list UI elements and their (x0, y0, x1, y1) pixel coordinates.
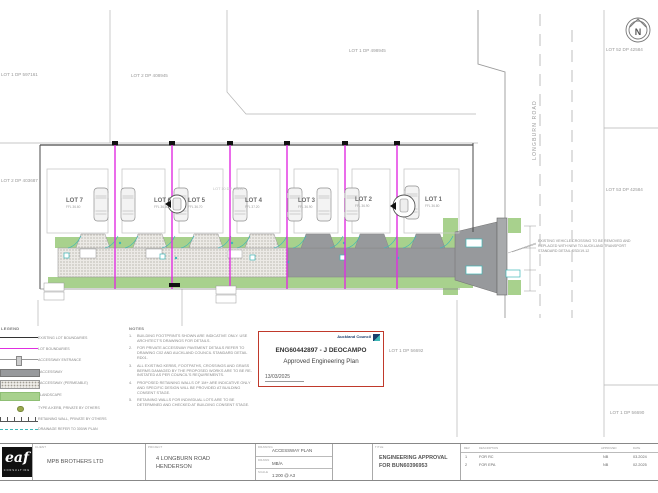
note-item: 3.ALL EXISTING KERBS, FOOTPATHS, CROSSIN… (129, 364, 257, 379)
rev-cell: FOR EPA (479, 463, 495, 467)
bar-dots-icon (0, 380, 40, 389)
project-cell: PROJECT 4 LONGBURN ROAD HENDERSON (145, 444, 256, 480)
lot-name: LOT 3 (298, 198, 316, 204)
stamp-date: 13/03/2025 (265, 374, 304, 382)
lot-ffl: FFL 36.70 (188, 205, 203, 209)
scale-tick-icon (169, 283, 180, 287)
legend-item: TYPE A KERB, PRIVATE BY OTHERS (0, 404, 122, 412)
north-label: N (635, 27, 642, 37)
north-arrow-icon: N (626, 18, 650, 42)
field-scale: SCALE 1:200 @ A3 (256, 468, 333, 481)
council-mark-icon (373, 334, 380, 341)
project-address-line2: HENDERSON (156, 464, 192, 470)
parcel-label: LOT 10 DP 40894 (213, 187, 243, 191)
wall-icon (0, 417, 38, 422)
legend-item: LOT BOUNDARIES (0, 345, 122, 353)
drawing-sheet: N LOT 1 DP 597161 LOT 2 DP 403687 LOT 2 … (0, 0, 658, 493)
svg-text:EXISTING VEHICLE CROSSING TO B: EXISTING VEHICLE CROSSING TO BE REMOVED … (538, 239, 631, 243)
lot-name: LOT 7 (66, 198, 84, 204)
kerb-dot-icon (0, 404, 38, 412)
lot-ffl: FFL 36.60 (66, 205, 81, 209)
line-black-icon (0, 334, 38, 342)
lot-name: LOT 6 (154, 198, 172, 204)
road-name-label: LONGBURN ROAD (532, 100, 538, 160)
rev-cell: FOR RC (479, 455, 494, 459)
legend-item: ACCESSWAY ENTRANCE (0, 356, 122, 365)
bar-gray-icon (0, 369, 40, 377)
lot-name: LOT 4 (245, 198, 263, 204)
lot-ffl: FFL 36.80 (425, 204, 440, 208)
parcel-label: LOT 2 DP 403687 (1, 178, 38, 183)
legend-title: LEGEND (1, 326, 122, 331)
client-name: MPB BROTHERS LTD (47, 459, 103, 465)
parcel-label: LOT 1 DP 498945 (349, 48, 386, 53)
parcel-label: LOT 1 DP 597161 (1, 72, 38, 77)
field-drawing: DRAWING ACCESSWAY PLAN (256, 444, 333, 456)
vehicle-crossing (455, 218, 536, 295)
lot-name: LOT 2 (355, 197, 373, 203)
note-item: 4.PROPOSED RETAINING WALLS OF 1M+ ARE IN… (129, 381, 257, 396)
lot-ffl: FFL 37.20 (245, 205, 260, 209)
svg-text:STANDARD DETAIL SSD/19-12: STANDARD DETAIL SSD/19-12 (538, 249, 589, 253)
sheet-title-line2: FOR BUN60396953 (379, 463, 428, 469)
legend-item: EXISTING LOT BOUNDARIES (0, 334, 122, 342)
line-magenta-icon (0, 345, 38, 353)
approval-stamp: Auckland Council ENG60442897 - J DEOCAMP… (258, 331, 384, 387)
spare-cell (332, 444, 373, 480)
client-cell: CLIENT MPB BROTHERS LTD (32, 444, 146, 480)
rev-cell: 02.2025 (633, 463, 647, 467)
legend: LEGEND EXISTING LOT BOUNDARIES LOT BOUND… (0, 326, 122, 437)
note-item: 1.BUILDING FOOTPRINTS SHOWN ARE INDICATI… (129, 334, 257, 344)
project-address-line1: 4 LONGBURN ROAD (156, 456, 210, 462)
lot-ffl: FFL 36.60 (154, 205, 169, 209)
sheet-title-line1: ENGINEERING APPROVAL (379, 455, 448, 461)
fields-cell: DRAWING ACCESSWAY PLAN DRAWN MB/A SCALE … (255, 444, 333, 480)
line-teal-icon (0, 426, 38, 434)
stamp-status: Approved Engineering Plan (259, 358, 383, 365)
legend-item: DRAINAGE REFER TO 300/W PLAN (0, 426, 122, 434)
stamp-reference: ENG60442897 - J DEOCAMPO (259, 347, 383, 354)
parcel-label: LOT 2 DP 408945 (131, 73, 168, 78)
parcel-label: LOT 1 DP 56690 (610, 410, 645, 415)
legend-item: ACCESSWAY (PERMEABLE) (0, 380, 122, 389)
lot-ffl: FFL 36.90 (355, 204, 370, 208)
lot-name: LOT 5 (188, 198, 206, 204)
auckland-council-logo: Auckland Council (337, 334, 380, 341)
parcel-label: LOT 53 DP 42584 (606, 187, 643, 192)
entrance-icon (0, 359, 38, 365)
rev-cell: 03.2024 (633, 455, 647, 459)
company-logo: eaf CONSULTING (2, 447, 32, 477)
rev-cell: 2 (465, 463, 467, 467)
parcel-label: LOT 52 DP 42584 (606, 47, 643, 52)
parcel-label: LOT 1 DP 56692 (389, 348, 424, 353)
note-item: 5.RETAINING WALLS FOR INDIVIDUAL LOTS AR… (129, 398, 257, 408)
legend-item: LANDSCAPE (0, 392, 122, 401)
rev-cell: NB (603, 463, 608, 467)
bar-green-icon (0, 392, 40, 401)
title-block: eaf CONSULTING CLIENT MPB BROTHERS LTD P… (0, 443, 658, 481)
svg-text:REPLACED WITH NEW TO AUCKLAND: REPLACED WITH NEW TO AUCKLAND TRANSPORT (538, 244, 627, 248)
notes-title: NOTES (129, 326, 257, 331)
rev-cell: NB (603, 455, 608, 459)
rev-cell: 1 (465, 455, 467, 459)
notes: NOTES 1.BUILDING FOOTPRINTS SHOWN ARE IN… (129, 326, 257, 410)
lot-name: LOT 1 (425, 197, 443, 203)
revision-table: REV DESCRIPTION APPROVED DATE 1 FOR RC N… (460, 444, 658, 480)
legend-item: ACCESSWAY (0, 369, 122, 377)
note-item: 2.FOR PRIVATE ACCESSWAY PAVEMENT DETAILS… (129, 346, 257, 361)
lot-ffl: FFL 36.90 (298, 205, 313, 209)
sheet-title-cell: TITLE ENGINEERING APPROVAL FOR BUN603969… (372, 444, 461, 480)
legend-item: RETAINING WALL, PRIVATE BY OTHERS (0, 415, 122, 422)
